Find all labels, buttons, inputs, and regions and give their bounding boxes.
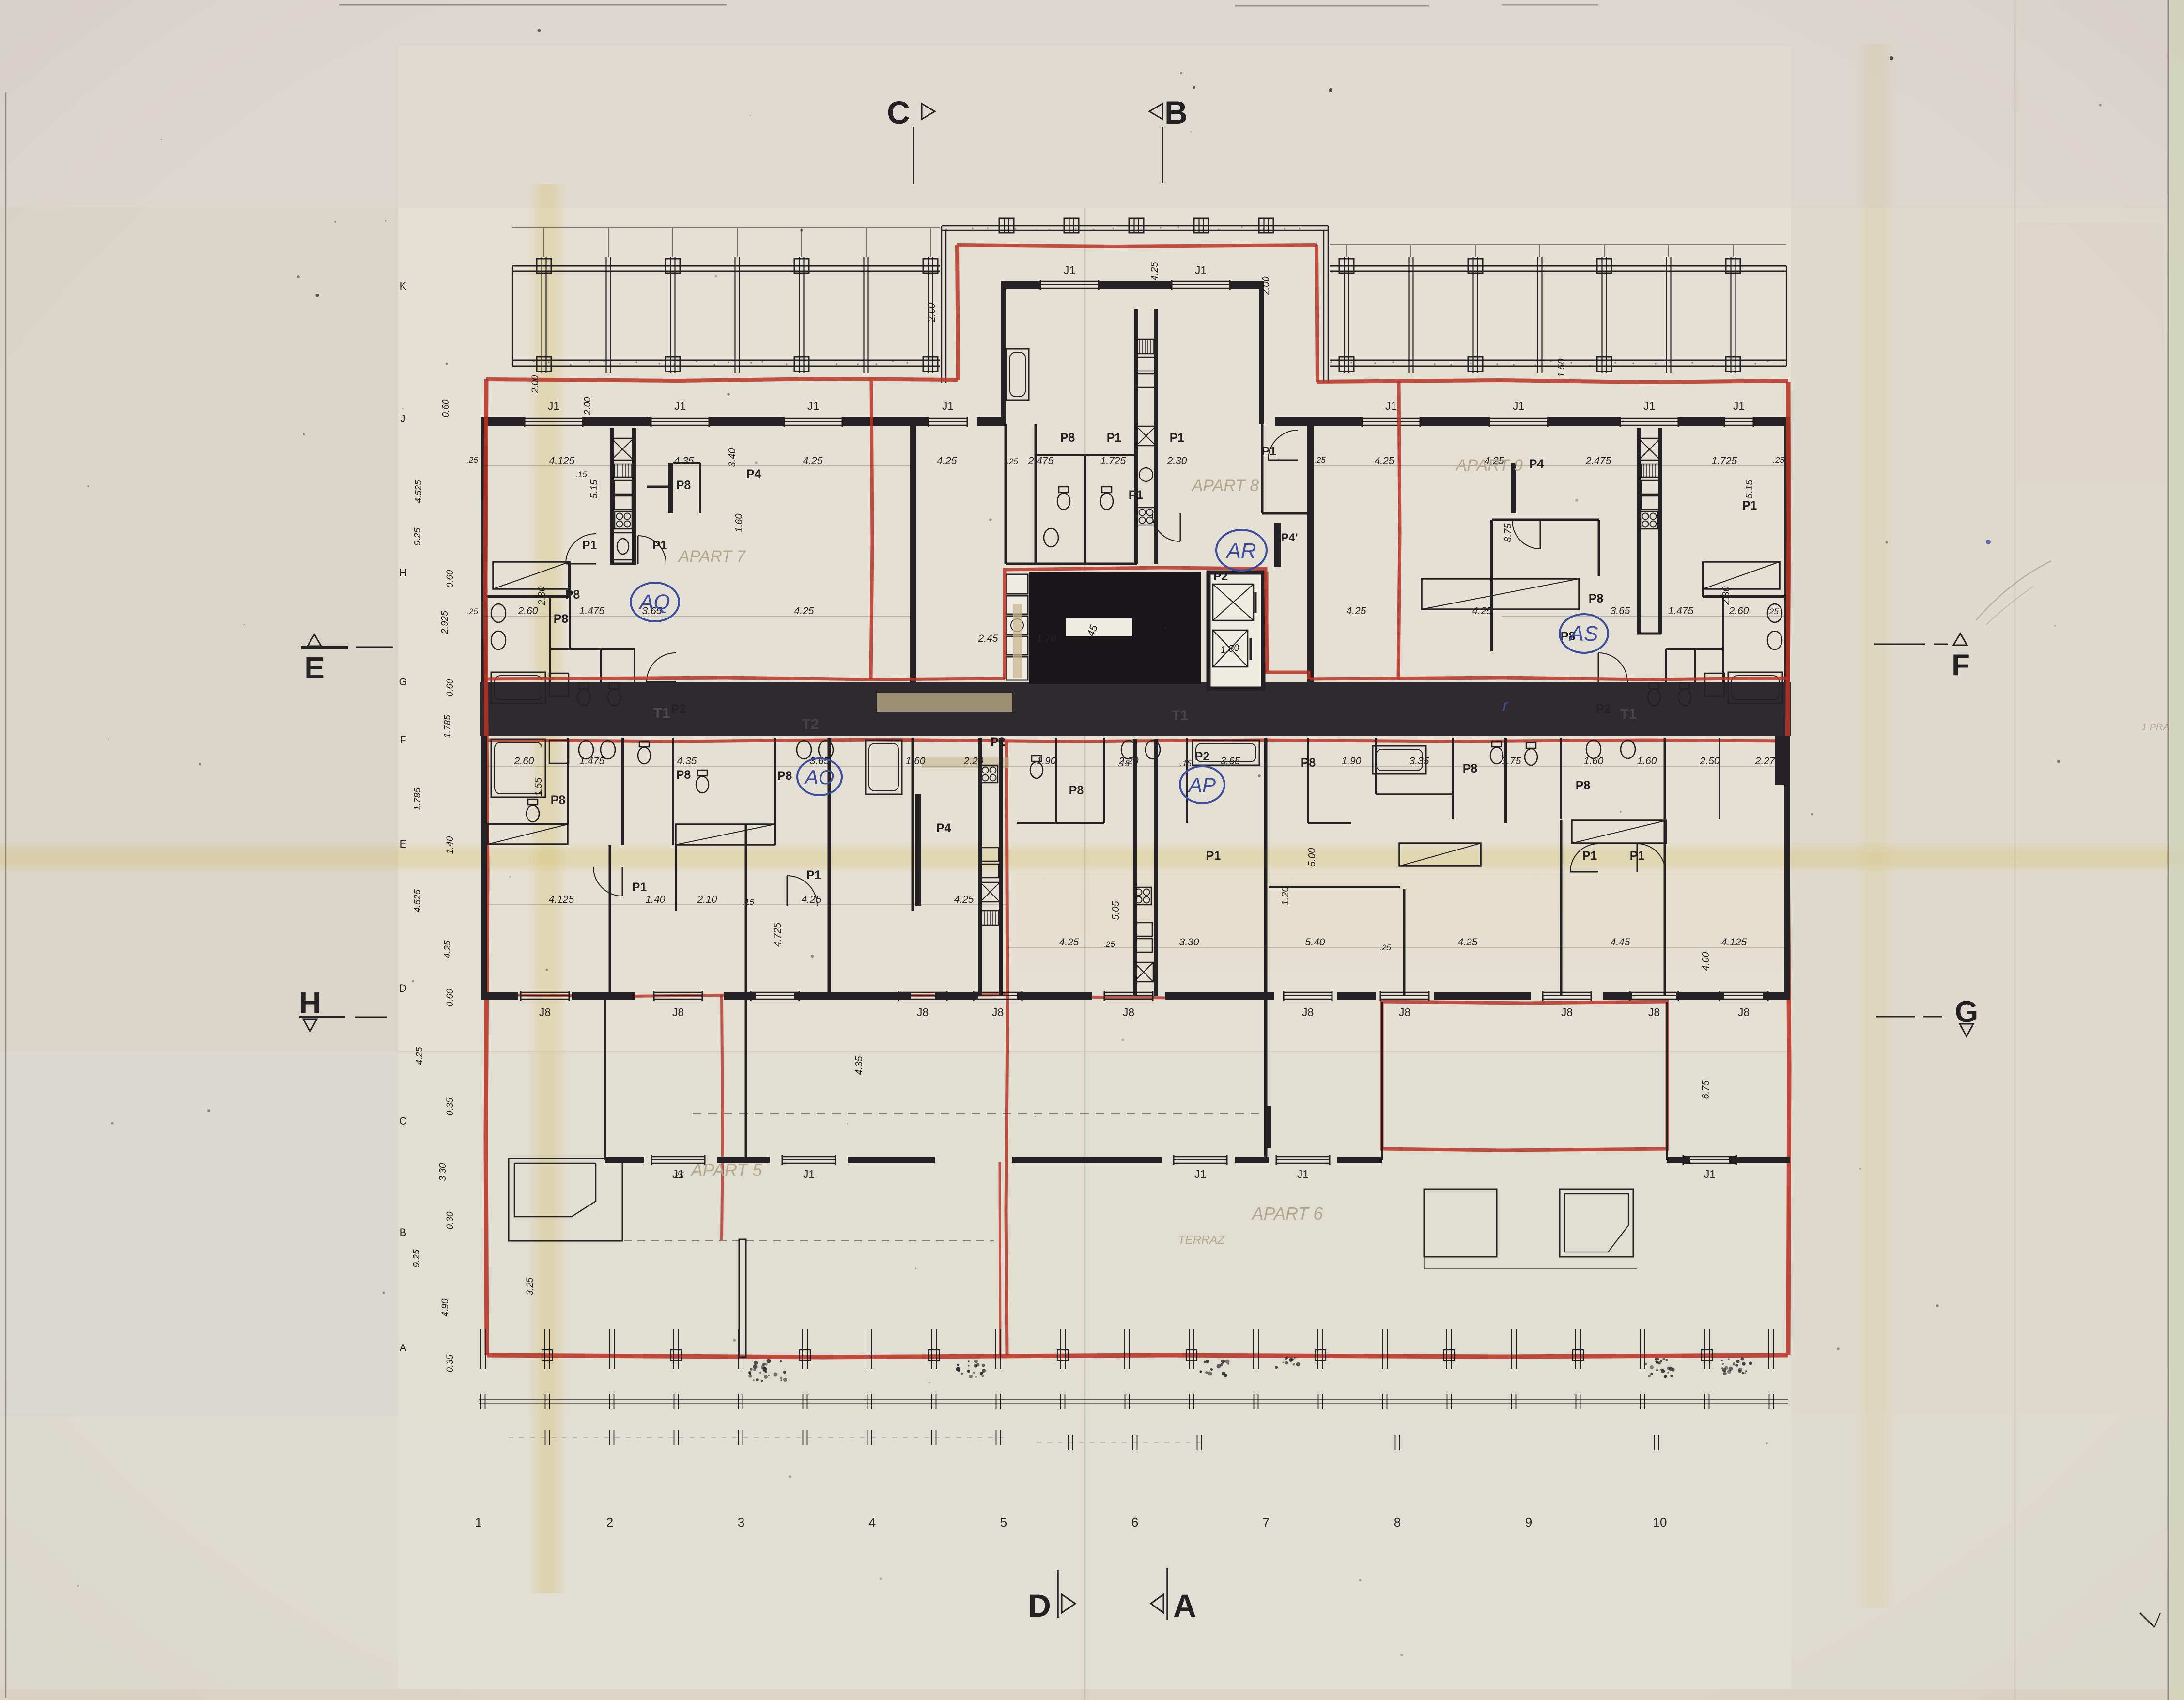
svg-text:P2: P2 bbox=[1596, 702, 1611, 716]
svg-text:1.70: 1.70 bbox=[1037, 633, 1056, 644]
svg-text:P1: P1 bbox=[1107, 431, 1122, 445]
svg-text:9.25: 9.25 bbox=[412, 1249, 422, 1267]
svg-text:.15: .15 bbox=[743, 897, 754, 907]
svg-text:1.725: 1.725 bbox=[1712, 455, 1737, 466]
svg-text:B: B bbox=[1164, 94, 1188, 130]
svg-text:F: F bbox=[400, 734, 406, 746]
svg-text:4.25: 4.25 bbox=[802, 894, 821, 905]
svg-text:1.475: 1.475 bbox=[579, 605, 605, 617]
svg-text:P1: P1 bbox=[582, 539, 597, 552]
svg-text:4.35: 4.35 bbox=[677, 756, 697, 767]
svg-text:r: r bbox=[1502, 696, 1509, 715]
svg-text:4.125: 4.125 bbox=[1721, 937, 1747, 948]
svg-text:3: 3 bbox=[738, 1515, 744, 1530]
svg-text:0.35: 0.35 bbox=[445, 1097, 455, 1115]
svg-text:D: D bbox=[399, 982, 407, 994]
svg-text:1.40: 1.40 bbox=[646, 894, 666, 905]
svg-text:P8: P8 bbox=[676, 768, 691, 782]
svg-text:4.25: 4.25 bbox=[1059, 937, 1079, 948]
svg-text:3.30: 3.30 bbox=[438, 1163, 448, 1181]
svg-text:4.90: 4.90 bbox=[440, 1298, 450, 1316]
svg-text:APART 5: APART 5 bbox=[690, 1160, 763, 1180]
svg-text:J1: J1 bbox=[1385, 400, 1397, 412]
svg-text:D: D bbox=[1028, 1588, 1051, 1623]
svg-text:0.35: 0.35 bbox=[445, 1354, 455, 1372]
svg-text:4.25: 4.25 bbox=[443, 940, 453, 958]
svg-text:10: 10 bbox=[1653, 1515, 1667, 1530]
svg-text:P1: P1 bbox=[1262, 445, 1277, 458]
svg-text:4.25: 4.25 bbox=[954, 894, 974, 905]
svg-text:P8: P8 bbox=[676, 479, 691, 492]
svg-text:5.15: 5.15 bbox=[1744, 479, 1755, 499]
svg-text:1.60: 1.60 bbox=[1584, 756, 1604, 767]
svg-text:4.25: 4.25 bbox=[1149, 262, 1160, 281]
svg-text:A: A bbox=[1173, 1588, 1196, 1623]
svg-text:E: E bbox=[304, 651, 324, 685]
svg-text:J8: J8 bbox=[672, 1006, 684, 1019]
svg-text:J: J bbox=[401, 413, 406, 425]
svg-text:J1: J1 bbox=[1195, 264, 1207, 277]
svg-text:.25: .25 bbox=[1773, 455, 1784, 464]
svg-text:1.50: 1.50 bbox=[1556, 359, 1567, 378]
svg-text:5.40: 5.40 bbox=[1305, 937, 1325, 948]
svg-text:APART 6: APART 6 bbox=[1251, 1204, 1324, 1223]
svg-text:3.30: 3.30 bbox=[1179, 937, 1199, 948]
svg-text:P1: P1 bbox=[1582, 849, 1597, 863]
svg-text:4.525: 4.525 bbox=[414, 480, 424, 503]
svg-text:C: C bbox=[887, 94, 910, 130]
svg-text:J1: J1 bbox=[1297, 1168, 1309, 1180]
svg-text:.15: .15 bbox=[575, 470, 587, 479]
svg-text:J8: J8 bbox=[1399, 1006, 1410, 1019]
svg-text:P1: P1 bbox=[652, 539, 667, 552]
svg-text:J1: J1 bbox=[1643, 400, 1655, 412]
svg-text:AP: AP bbox=[1187, 773, 1216, 796]
svg-text:.25: .25 bbox=[466, 455, 478, 464]
svg-text:2.20: 2.20 bbox=[963, 756, 984, 767]
svg-text:2.475: 2.475 bbox=[1028, 455, 1054, 466]
svg-text:P2: P2 bbox=[1195, 750, 1210, 763]
svg-text:7: 7 bbox=[1263, 1515, 1270, 1530]
svg-text:1.60: 1.60 bbox=[734, 514, 744, 533]
svg-text:.25: .25 bbox=[466, 607, 478, 616]
svg-text:J1: J1 bbox=[1064, 264, 1075, 277]
svg-text:3.35: 3.35 bbox=[1410, 756, 1429, 767]
svg-text:P8: P8 bbox=[777, 769, 792, 783]
svg-text:1.475: 1.475 bbox=[1668, 605, 1694, 617]
svg-text:1.785: 1.785 bbox=[413, 788, 423, 811]
svg-text:8: 8 bbox=[1394, 1515, 1401, 1530]
svg-text:1.90: 1.90 bbox=[1342, 756, 1362, 767]
svg-text:4.35: 4.35 bbox=[854, 1056, 865, 1075]
svg-text:AR: AR bbox=[1225, 539, 1256, 563]
svg-text:5: 5 bbox=[1000, 1515, 1007, 1530]
svg-text:APART 7: APART 7 bbox=[678, 547, 746, 566]
svg-text:4.25: 4.25 bbox=[1458, 937, 1478, 948]
svg-text:J8: J8 bbox=[1123, 1006, 1134, 1019]
svg-text:.15: .15 bbox=[1180, 759, 1192, 768]
svg-text:2.80: 2.80 bbox=[1721, 587, 1732, 606]
svg-text:4.125: 4.125 bbox=[549, 455, 575, 466]
svg-text:P1: P1 bbox=[1206, 849, 1221, 863]
svg-text:P8: P8 bbox=[551, 793, 566, 807]
svg-text:P8: P8 bbox=[554, 612, 569, 626]
svg-text:6.75: 6.75 bbox=[1701, 1080, 1711, 1099]
svg-text:J1: J1 bbox=[548, 400, 559, 412]
svg-text:P8: P8 bbox=[1060, 431, 1075, 445]
svg-text:P2: P2 bbox=[991, 735, 1006, 749]
svg-text:9: 9 bbox=[1525, 1515, 1532, 1530]
svg-text:4.125: 4.125 bbox=[549, 894, 574, 905]
svg-text:P2: P2 bbox=[671, 702, 686, 716]
svg-text:J1: J1 bbox=[1513, 400, 1524, 412]
svg-text:B: B bbox=[400, 1226, 407, 1238]
svg-text:1.40: 1.40 bbox=[445, 836, 455, 854]
svg-text:9.25: 9.25 bbox=[413, 527, 423, 545]
svg-text:4.25: 4.25 bbox=[937, 455, 957, 466]
svg-text:4.25: 4.25 bbox=[415, 1047, 425, 1065]
svg-text:J8: J8 bbox=[992, 1006, 1004, 1019]
svg-text:P8: P8 bbox=[1069, 784, 1084, 797]
svg-text:2.60: 2.60 bbox=[514, 756, 534, 767]
svg-text:3.25: 3.25 bbox=[525, 1277, 535, 1295]
svg-text:J8: J8 bbox=[539, 1006, 551, 1019]
svg-text:APART 9: APART 9 bbox=[1455, 456, 1523, 475]
svg-text:P1: P1 bbox=[632, 881, 647, 894]
svg-text:1.475: 1.475 bbox=[579, 756, 605, 767]
svg-text:0.60: 0.60 bbox=[445, 570, 455, 587]
svg-text:1.20: 1.20 bbox=[1280, 887, 1291, 906]
svg-text:0.60: 0.60 bbox=[445, 989, 455, 1006]
svg-text:T1: T1 bbox=[1620, 706, 1637, 722]
svg-text:1.725: 1.725 bbox=[1100, 455, 1126, 466]
svg-text:2.00: 2.00 bbox=[583, 397, 593, 415]
svg-text:1.785: 1.785 bbox=[443, 715, 453, 738]
svg-text:P1: P1 bbox=[806, 868, 821, 882]
svg-text:C: C bbox=[399, 1115, 407, 1127]
svg-text:1.60: 1.60 bbox=[906, 756, 926, 767]
svg-text:H: H bbox=[399, 567, 407, 579]
svg-text:1: 1 bbox=[475, 1515, 482, 1530]
svg-text:T1: T1 bbox=[1171, 708, 1188, 724]
svg-text:1.55: 1.55 bbox=[533, 777, 544, 797]
svg-text:4: 4 bbox=[869, 1515, 876, 1530]
svg-text:4.25: 4.25 bbox=[794, 605, 814, 617]
svg-text:4.25: 4.25 bbox=[1347, 605, 1366, 617]
svg-text:J8: J8 bbox=[1738, 1006, 1750, 1019]
svg-text:TERRAZ: TERRAZ bbox=[1178, 1234, 1225, 1247]
svg-text:E: E bbox=[400, 838, 407, 850]
svg-text:2.30: 2.30 bbox=[1167, 455, 1187, 466]
svg-text:P8: P8 bbox=[1301, 756, 1316, 770]
svg-text:0.30: 0.30 bbox=[445, 1211, 455, 1229]
svg-text:J1: J1 bbox=[803, 1168, 815, 1180]
svg-text:A: A bbox=[400, 1342, 407, 1354]
svg-text:4.25: 4.25 bbox=[1472, 605, 1492, 617]
svg-text:P2: P2 bbox=[1213, 570, 1228, 583]
svg-text:J1: J1 bbox=[1194, 1168, 1206, 1180]
svg-text:2.00: 2.00 bbox=[927, 303, 937, 323]
svg-text:J8: J8 bbox=[917, 1006, 929, 1019]
svg-text:J1: J1 bbox=[1733, 400, 1745, 412]
svg-text:.25: .25 bbox=[672, 1171, 684, 1180]
svg-text:J1: J1 bbox=[942, 400, 954, 412]
svg-text:5.15: 5.15 bbox=[589, 479, 600, 499]
svg-text:4.45: 4.45 bbox=[1611, 937, 1630, 948]
svg-text:P1: P1 bbox=[1630, 849, 1645, 863]
svg-text:.25: .25 bbox=[1314, 455, 1326, 464]
svg-text:5.05: 5.05 bbox=[1111, 901, 1121, 920]
svg-text:1.90: 1.90 bbox=[1037, 756, 1056, 767]
svg-text:T1: T1 bbox=[653, 705, 670, 721]
svg-text:H: H bbox=[299, 987, 321, 1020]
svg-text:5.00: 5.00 bbox=[1307, 848, 1317, 867]
svg-text:P1: P1 bbox=[1170, 431, 1185, 445]
svg-text:J8: J8 bbox=[1561, 1006, 1573, 1019]
svg-text:4.725: 4.725 bbox=[773, 922, 783, 947]
svg-text:.25: .25 bbox=[1103, 940, 1115, 949]
svg-text:2.60: 2.60 bbox=[1729, 605, 1749, 617]
svg-text:F: F bbox=[1952, 649, 1970, 682]
svg-text:3.40: 3.40 bbox=[727, 448, 738, 467]
svg-text:4.35: 4.35 bbox=[674, 455, 694, 466]
svg-text:T2: T2 bbox=[802, 716, 819, 732]
svg-text:0.60: 0.60 bbox=[441, 399, 451, 417]
svg-text:P1: P1 bbox=[1742, 499, 1757, 512]
svg-text:AO: AO bbox=[804, 766, 835, 788]
svg-text:J1: J1 bbox=[807, 400, 819, 412]
svg-text:P8: P8 bbox=[565, 588, 580, 602]
svg-text:J8: J8 bbox=[1302, 1006, 1314, 1019]
svg-text:3.65: 3.65 bbox=[1611, 605, 1630, 617]
svg-text:4.00: 4.00 bbox=[1701, 952, 1711, 971]
svg-text:2.475: 2.475 bbox=[1585, 455, 1611, 466]
svg-text:2.50: 2.50 bbox=[1700, 756, 1720, 767]
svg-text:P4: P4 bbox=[936, 821, 951, 835]
svg-text:.25: .25 bbox=[1007, 457, 1018, 466]
svg-text:1.60: 1.60 bbox=[1637, 756, 1657, 767]
svg-text:3.65: 3.65 bbox=[1221, 756, 1240, 767]
svg-text:4.25: 4.25 bbox=[1375, 455, 1394, 466]
svg-text:J8: J8 bbox=[1648, 1006, 1660, 1019]
svg-text:4.25: 4.25 bbox=[803, 455, 823, 466]
svg-text:2.80: 2.80 bbox=[537, 587, 547, 606]
svg-text:2.10: 2.10 bbox=[697, 894, 717, 905]
svg-text:3.75: 3.75 bbox=[1502, 756, 1521, 767]
svg-text:2.925: 2.925 bbox=[440, 611, 450, 634]
svg-text:8.75: 8.75 bbox=[1503, 523, 1514, 542]
svg-text:.15: .15 bbox=[1118, 759, 1130, 768]
svg-text:1 PRA: 1 PRA bbox=[2141, 722, 2169, 733]
svg-text:APART 8: APART 8 bbox=[1191, 477, 1259, 495]
svg-text:4.525: 4.525 bbox=[413, 889, 423, 912]
svg-text:G: G bbox=[399, 676, 407, 688]
svg-text:2.60: 2.60 bbox=[518, 605, 538, 617]
svg-text:J1: J1 bbox=[674, 400, 686, 412]
svg-text:P4': P4' bbox=[1281, 531, 1298, 544]
svg-text:J1: J1 bbox=[1704, 1168, 1716, 1180]
svg-text:AQ: AQ bbox=[638, 590, 670, 614]
svg-text:P8: P8 bbox=[1589, 592, 1604, 605]
svg-text:P8: P8 bbox=[1463, 762, 1478, 775]
svg-text:2.45: 2.45 bbox=[978, 633, 998, 644]
svg-text:P4: P4 bbox=[1529, 457, 1544, 471]
svg-text:P4: P4 bbox=[746, 467, 761, 481]
svg-text:AS: AS bbox=[1568, 622, 1598, 646]
svg-text:.25: .25 bbox=[1767, 607, 1779, 616]
svg-text:6: 6 bbox=[1131, 1515, 1138, 1530]
svg-text:K: K bbox=[400, 280, 407, 292]
svg-text:0.60: 0.60 bbox=[445, 679, 455, 696]
svg-text:3.65: 3.65 bbox=[810, 756, 830, 767]
svg-text:P1: P1 bbox=[1129, 488, 1144, 502]
svg-text:2: 2 bbox=[606, 1515, 613, 1530]
svg-text:P8: P8 bbox=[1576, 779, 1591, 792]
svg-text:2.00: 2.00 bbox=[1261, 277, 1271, 296]
svg-text:2.00: 2.00 bbox=[530, 375, 541, 393]
svg-text:.25: .25 bbox=[1379, 943, 1391, 952]
